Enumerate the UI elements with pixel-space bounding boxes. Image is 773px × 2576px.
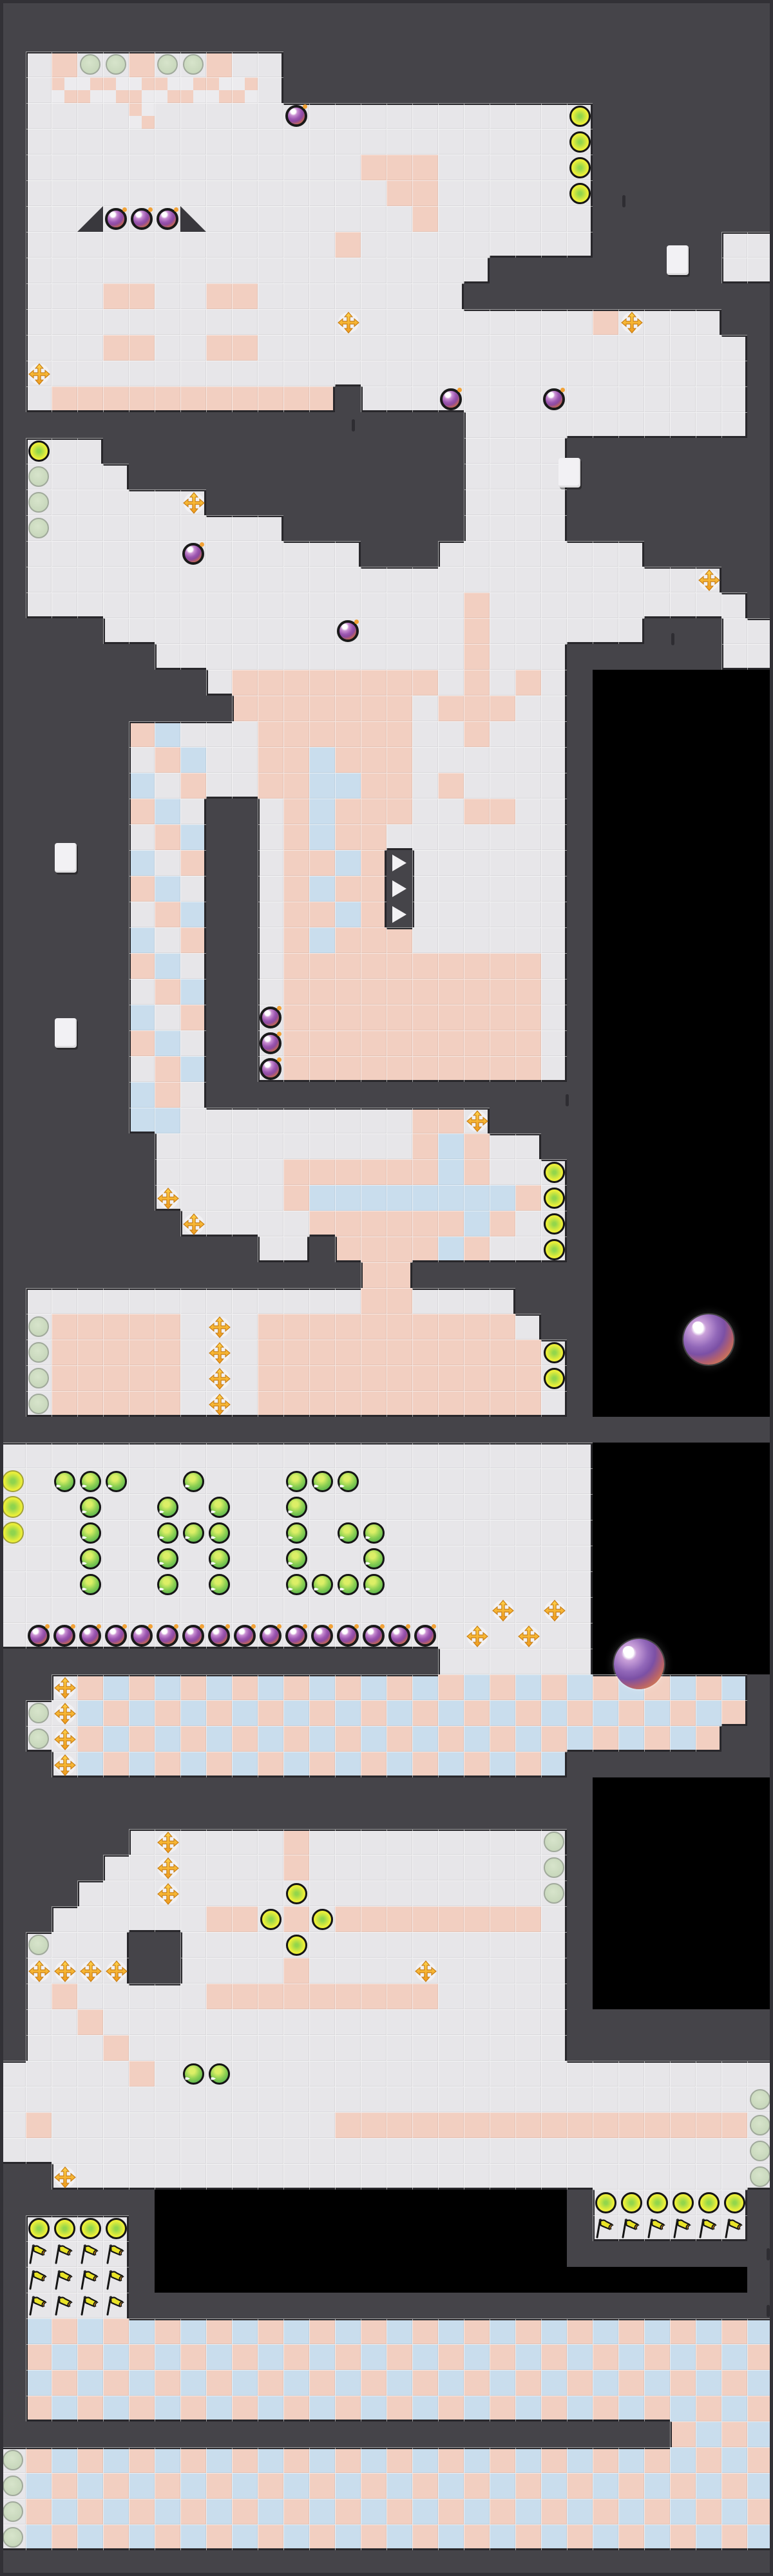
pit-tile [438, 2190, 464, 2215]
pit-tile [412, 2267, 438, 2293]
pink-tile [412, 1005, 438, 1030]
pink-tile [490, 1030, 515, 1056]
floor-tile [155, 1288, 180, 1314]
flag-icon[interactable] [53, 2269, 75, 2291]
boost-yellow-icon[interactable] [569, 157, 591, 178]
floor-tile [309, 1855, 335, 1880]
floor-tile [438, 206, 464, 232]
pit-tile [412, 2190, 438, 2215]
powerup-green-icon[interactable] [157, 1548, 178, 1569]
checker-tile [232, 2473, 258, 2499]
gold-cross-icon[interactable] [466, 1110, 488, 1132]
gold-cross-icon[interactable] [157, 1832, 179, 1853]
floor-tile [541, 2035, 567, 2061]
checker-tile [283, 1674, 309, 1700]
bomb-icon[interactable] [234, 1625, 256, 1647]
pink-tile [283, 902, 309, 927]
pit-tile [644, 902, 670, 927]
gold-cross-icon[interactable] [698, 569, 720, 591]
boost-yellow-plain-icon[interactable] [2, 1522, 24, 1544]
floor-tile [541, 1030, 567, 1056]
gold-cross-icon[interactable] [415, 1960, 437, 1982]
gold-cross-icon[interactable] [183, 1213, 205, 1235]
boost-yellow-icon[interactable] [312, 1909, 333, 1930]
pink-tile [361, 824, 386, 850]
flag-icon[interactable] [723, 2217, 745, 2239]
boost-yellow-icon[interactable] [80, 2218, 101, 2239]
boost-yellow-icon[interactable] [286, 1935, 307, 1956]
powerup-green-icon[interactable] [363, 1574, 385, 1595]
boost-yellow-icon[interactable] [544, 1188, 565, 1209]
powerup-green-icon[interactable] [183, 2063, 204, 2085]
bomb-icon[interactable] [131, 1625, 153, 1647]
floor-tile [438, 1520, 464, 1546]
floor-tile [258, 335, 283, 361]
powerup-green-icon[interactable] [54, 1471, 75, 1492]
gold-cross-icon[interactable] [492, 1600, 514, 1622]
gold-cross-icon[interactable] [54, 1703, 76, 1725]
boost-yellow-icon[interactable] [569, 183, 591, 204]
floor-tile [180, 1906, 206, 1932]
pink-tile [283, 1906, 309, 1932]
pit-tile [361, 2267, 386, 2293]
pink-tile [103, 335, 129, 361]
portal-orb-icon[interactable] [683, 1314, 734, 1365]
pit-tile [747, 902, 773, 927]
floor-tile [206, 103, 232, 129]
bomb-icon[interactable] [260, 1007, 282, 1028]
floor-tile [361, 567, 386, 592]
pit-tile [490, 2241, 515, 2267]
bomb-icon[interactable] [182, 543, 204, 565]
checker-tile [206, 77, 232, 103]
gold-cross-icon[interactable] [54, 1754, 76, 1776]
flag-icon[interactable] [53, 2243, 75, 2265]
powerup-green-icon[interactable] [80, 1522, 101, 1544]
floor-tile [309, 1443, 335, 1468]
checker-tile [618, 2370, 644, 2396]
bomb-icon[interactable] [28, 1625, 50, 1647]
floor-tile [541, 773, 567, 799]
bomb-icon[interactable] [260, 1625, 282, 1647]
door-icon[interactable] [558, 458, 580, 488]
floor-tile [567, 309, 593, 335]
door-icon[interactable] [55, 1018, 77, 1048]
pink-tile [129, 52, 155, 77]
pit-tile [721, 1133, 747, 1159]
pit-tile [644, 1803, 670, 1829]
floor-tile [438, 335, 464, 361]
gold-cross-icon[interactable] [54, 1677, 76, 1699]
gold-cross-icon[interactable] [106, 1960, 128, 1982]
floor-tile [206, 361, 232, 386]
flag-icon[interactable] [28, 2295, 50, 2316]
powerup-green-icon[interactable] [80, 1497, 101, 1518]
floor-tile [180, 1571, 206, 1597]
powerup-green-icon[interactable] [286, 1522, 307, 1544]
pit-tile [618, 1340, 644, 1365]
powerup-green-icon[interactable] [363, 1522, 385, 1544]
floor-tile [258, 927, 283, 953]
pink-tile [361, 1340, 386, 1365]
checker-tile [593, 1726, 618, 1752]
floor-tile [464, 567, 490, 592]
blue-tile [155, 1108, 180, 1133]
gold-cross-icon[interactable] [209, 1394, 231, 1416]
boost-yellow-icon[interactable] [28, 2218, 50, 2239]
pit-tile [696, 1597, 721, 1623]
pink-tile [412, 206, 438, 232]
flag-icon[interactable] [646, 2217, 668, 2239]
gold-cross-icon[interactable] [518, 1625, 540, 1647]
floor-tile [180, 1314, 206, 1340]
powerup-green-icon[interactable] [363, 1548, 385, 1569]
checker-tile [129, 2370, 155, 2396]
checker-tile [26, 2396, 52, 2421]
floor-tile [438, 2164, 464, 2190]
gold-cross-icon[interactable] [209, 1316, 231, 1338]
pink-tile [309, 902, 335, 927]
bomb-icon[interactable] [131, 208, 153, 230]
powerup-green-icon[interactable] [209, 1522, 230, 1544]
floor-tile [283, 335, 309, 361]
flag-icon[interactable] [672, 2217, 694, 2239]
bomb-icon[interactable] [208, 1625, 230, 1647]
powerup-green-icon[interactable] [80, 1548, 101, 1569]
boost-yellow-icon[interactable] [260, 1909, 282, 1930]
pit-tile [721, 1906, 747, 1932]
pit-tile [618, 1185, 644, 1211]
floor-tile [129, 1546, 155, 1571]
powerup-green-icon[interactable] [209, 2063, 230, 2085]
gold-cross-icon[interactable] [209, 1368, 231, 1390]
pink-tile [361, 1211, 386, 1236]
pit-tile [232, 2215, 258, 2241]
pink-tile [155, 1314, 180, 1340]
checker-tile [155, 2370, 180, 2396]
powerup-green-icon[interactable] [338, 1574, 359, 1595]
pit-tile [747, 1520, 773, 1546]
flag-icon[interactable] [79, 2269, 101, 2291]
floor-tile [180, 876, 206, 902]
floor-tile [155, 1984, 180, 2009]
pit-tile [696, 1211, 721, 1236]
gold-cross-icon[interactable] [54, 2166, 76, 2188]
flag-icon[interactable] [79, 2243, 101, 2265]
blue-tile [129, 1108, 155, 1133]
bomb-icon[interactable] [388, 1625, 410, 1647]
gold-cross-icon[interactable] [157, 1188, 179, 1209]
floor-tile [258, 1880, 283, 1906]
flag-icon[interactable] [28, 2269, 50, 2291]
floor-tile [129, 541, 155, 567]
checker-tile [232, 2370, 258, 2396]
boost-yellow-icon[interactable] [544, 1162, 565, 1183]
floor-tile [335, 335, 361, 361]
floor-tile [258, 77, 283, 103]
pink-tile [386, 1005, 412, 1030]
pit-tile [309, 2241, 335, 2267]
boost-yellow-icon[interactable] [621, 2192, 642, 2213]
boost-yellow-icon[interactable] [673, 2192, 694, 2213]
pink-tile [103, 1391, 129, 1417]
boost-yellow-icon[interactable] [544, 1368, 565, 1389]
floor-tile [26, 1494, 52, 1520]
pit-tile [593, 902, 618, 927]
floor-tile [258, 2087, 283, 2112]
floor-tile [155, 361, 180, 386]
powerup-green-icon[interactable] [106, 1471, 127, 1492]
bomb-icon[interactable] [105, 208, 127, 230]
boost-yellow-icon[interactable] [54, 2218, 75, 2239]
floor-tile [26, 258, 52, 283]
pit-tile [696, 1468, 721, 1494]
bomb-icon[interactable] [363, 1625, 385, 1647]
gold-cross-icon[interactable] [338, 312, 359, 334]
flag-icon[interactable] [105, 2295, 127, 2316]
boost-yellow-icon[interactable] [28, 440, 50, 462]
floor-tile [26, 1546, 52, 1571]
pit-tile [696, 747, 721, 773]
pink-tile [258, 670, 283, 696]
bomb-icon[interactable] [105, 1625, 127, 1647]
checker-tile [490, 2396, 515, 2421]
pit-tile [696, 927, 721, 953]
flag-icon[interactable] [698, 2217, 720, 2239]
bomb-icon[interactable] [53, 1625, 75, 1647]
blue-tile [309, 824, 335, 850]
floor-tile [0, 2061, 26, 2087]
pink-tile [593, 309, 618, 335]
floor-tile [696, 386, 721, 412]
floor-tile [515, 103, 541, 129]
powerup-green-icon[interactable] [209, 1497, 230, 1518]
floor-tile [670, 335, 696, 361]
powerup-green-icon[interactable] [80, 1471, 101, 1492]
floor-tile [438, 927, 464, 953]
powerup-green-icon[interactable] [183, 1522, 204, 1544]
floor-tile [490, 1494, 515, 1520]
bomb-icon[interactable] [337, 620, 359, 642]
level-map[interactable] [0, 0, 773, 2576]
floor-tile [541, 103, 567, 129]
pink-tile [335, 232, 361, 258]
pink-tile [386, 1391, 412, 1417]
portal-orb-icon[interactable] [614, 1639, 664, 1689]
checker-tile [129, 1752, 155, 1777]
gold-cross-icon[interactable] [544, 1600, 566, 1622]
bomb-icon[interactable] [285, 105, 307, 127]
powerup-green-icon[interactable] [286, 1548, 307, 1569]
floor-tile [258, 1855, 283, 1880]
floor-tile [232, 1314, 258, 1340]
powerup-green-icon[interactable] [312, 1574, 333, 1595]
floor-tile [490, 103, 515, 129]
gold-cross-icon[interactable] [54, 1728, 76, 1750]
floor-tile [721, 335, 747, 361]
checker-tile [490, 1752, 515, 1777]
floor-tile [155, 1906, 180, 1932]
floor-tile [258, 1211, 283, 1236]
pit-tile [696, 1159, 721, 1185]
boost-yellow-icon[interactable] [647, 2192, 668, 2213]
checker-tile [464, 1726, 490, 1752]
bomb-icon[interactable] [182, 1625, 204, 1647]
floor-tile [26, 2035, 52, 2061]
powerup-green-icon[interactable] [183, 1471, 204, 1492]
bomb-icon[interactable] [157, 1625, 178, 1647]
checker-tile [206, 2499, 232, 2524]
boost-yellow-icon[interactable] [698, 2192, 720, 2213]
flag-icon[interactable] [620, 2217, 642, 2239]
bomb-icon[interactable] [285, 1625, 307, 1647]
floor-tile [515, 1597, 541, 1623]
pink-tile [206, 1906, 232, 1932]
gold-cross-icon[interactable] [466, 1625, 488, 1647]
checker-tile [593, 2524, 618, 2550]
powerup-green-icon[interactable] [286, 1471, 307, 1492]
pink-tile [232, 335, 258, 361]
powerup-green-icon[interactable] [312, 1471, 333, 1492]
floor-tile [283, 2164, 309, 2190]
floor-tile [541, 696, 567, 721]
boost-yellow-icon[interactable] [724, 2192, 745, 2213]
floor-tile [490, 876, 515, 902]
pink-tile [309, 1365, 335, 1391]
flag-icon[interactable] [105, 2269, 127, 2291]
checker-tile [541, 2344, 567, 2370]
pink-tile [361, 1906, 386, 1932]
powerup-green-icon[interactable] [338, 1471, 359, 1492]
boost-yellow-icon[interactable] [106, 2218, 127, 2239]
powerup-green-icon[interactable] [286, 1574, 307, 1595]
checker-tile [258, 1726, 283, 1752]
flag-icon[interactable] [53, 2295, 75, 2316]
boost-yellow-plain-icon[interactable] [2, 1496, 24, 1518]
powerup-green-icon[interactable] [286, 1497, 307, 1518]
floor-tile [361, 1494, 386, 1520]
pink-tile [206, 1984, 232, 2009]
pit-tile [644, 1236, 670, 1262]
gold-cross-icon[interactable] [28, 1960, 50, 1982]
powerup-green-icon[interactable] [338, 1522, 359, 1544]
boost-yellow-icon[interactable] [286, 1883, 307, 1904]
bomb-icon[interactable] [157, 208, 178, 230]
bomb-icon[interactable] [311, 1625, 333, 1647]
boost-yellow-plain-icon[interactable] [2, 1470, 24, 1492]
checker-tile [438, 2396, 464, 2421]
checker-tile [438, 2344, 464, 2370]
floor-tile [283, 2035, 309, 2061]
flag-icon[interactable] [79, 2295, 101, 2316]
floor-tile [77, 567, 103, 592]
pink-tile [361, 902, 386, 927]
pink-tile [412, 953, 438, 979]
floor-tile [515, 618, 541, 644]
pink-tile [129, 876, 155, 902]
pit-tile [747, 1185, 773, 1211]
floor-tile [129, 309, 155, 335]
boost-yellow-icon[interactable] [569, 131, 591, 153]
powerup-green-icon[interactable] [157, 1522, 178, 1544]
pit-tile [283, 2215, 309, 2241]
floor-tile [309, 129, 335, 155]
floor-tile [309, 1958, 335, 1984]
bomb-icon[interactable] [79, 1625, 101, 1647]
boost-yellow-icon[interactable] [569, 106, 591, 127]
floor-tile [129, 1984, 155, 2009]
pit-tile [258, 2267, 283, 2293]
floor-tile [232, 1571, 258, 1597]
gold-cross-icon[interactable] [80, 1960, 102, 1982]
floor-tile [335, 1597, 361, 1623]
floor-tile [644, 361, 670, 386]
floor-tile [26, 335, 52, 361]
floor-tile [232, 1520, 258, 1546]
bomb-icon[interactable] [414, 1625, 436, 1647]
powerup-green-icon[interactable] [80, 1574, 101, 1595]
boost-yellow-icon[interactable] [595, 2192, 616, 2213]
pit-tile [155, 2190, 180, 2215]
checker-tile [541, 2524, 567, 2550]
pit-tile [593, 1133, 618, 1159]
gold-cross-icon[interactable] [54, 1960, 76, 1982]
boost-yellow-icon[interactable] [544, 1342, 565, 1363]
door-icon[interactable] [55, 843, 77, 873]
pit-tile [593, 1546, 618, 1571]
bomb-icon[interactable] [260, 1032, 282, 1054]
checker-tile [361, 2370, 386, 2396]
boost-yellow-icon[interactable] [544, 1239, 565, 1260]
floor-tile [206, 2009, 232, 2035]
pink-tile [309, 696, 335, 721]
boost-yellow-icon[interactable] [544, 1213, 565, 1235]
gold-cross-icon[interactable] [183, 492, 205, 514]
gold-cross-icon[interactable] [28, 363, 50, 385]
pink-tile [515, 1030, 541, 1056]
floor-tile [386, 1546, 412, 1571]
powerup-green-icon[interactable] [209, 1574, 230, 1595]
checker-tile [438, 2318, 464, 2344]
powerup-green-icon[interactable] [209, 1548, 230, 1569]
flag-icon[interactable] [105, 2243, 127, 2265]
pit-tile [618, 1494, 644, 1520]
floor-tile [412, 927, 438, 953]
door-icon[interactable] [667, 245, 689, 275]
gold-cross-icon[interactable] [209, 1342, 231, 1364]
pink-tile [618, 2112, 644, 2138]
gold-cross-icon[interactable] [621, 312, 643, 334]
floor-tile [283, 618, 309, 644]
gold-cross-icon[interactable] [157, 1857, 179, 1879]
pit-tile [670, 1932, 696, 1958]
floor-tile [490, 1984, 515, 2009]
flag-icon[interactable] [595, 2217, 616, 2239]
floor-tile [180, 1546, 206, 1571]
flag-icon[interactable] [28, 2243, 50, 2265]
powerup-green-icon[interactable] [157, 1574, 178, 1595]
floor-tile [52, 283, 77, 309]
bomb-icon[interactable] [543, 388, 565, 410]
bomb-icon[interactable] [440, 388, 462, 410]
bomb-icon[interactable] [337, 1625, 359, 1647]
powerup-green-icon[interactable] [157, 1497, 178, 1518]
floor-tile [412, 1880, 438, 1906]
bomb-icon[interactable] [260, 1058, 282, 1080]
floor-tile [232, 2138, 258, 2164]
pink-tile [309, 721, 335, 747]
gold-cross-icon[interactable] [157, 1883, 179, 1905]
